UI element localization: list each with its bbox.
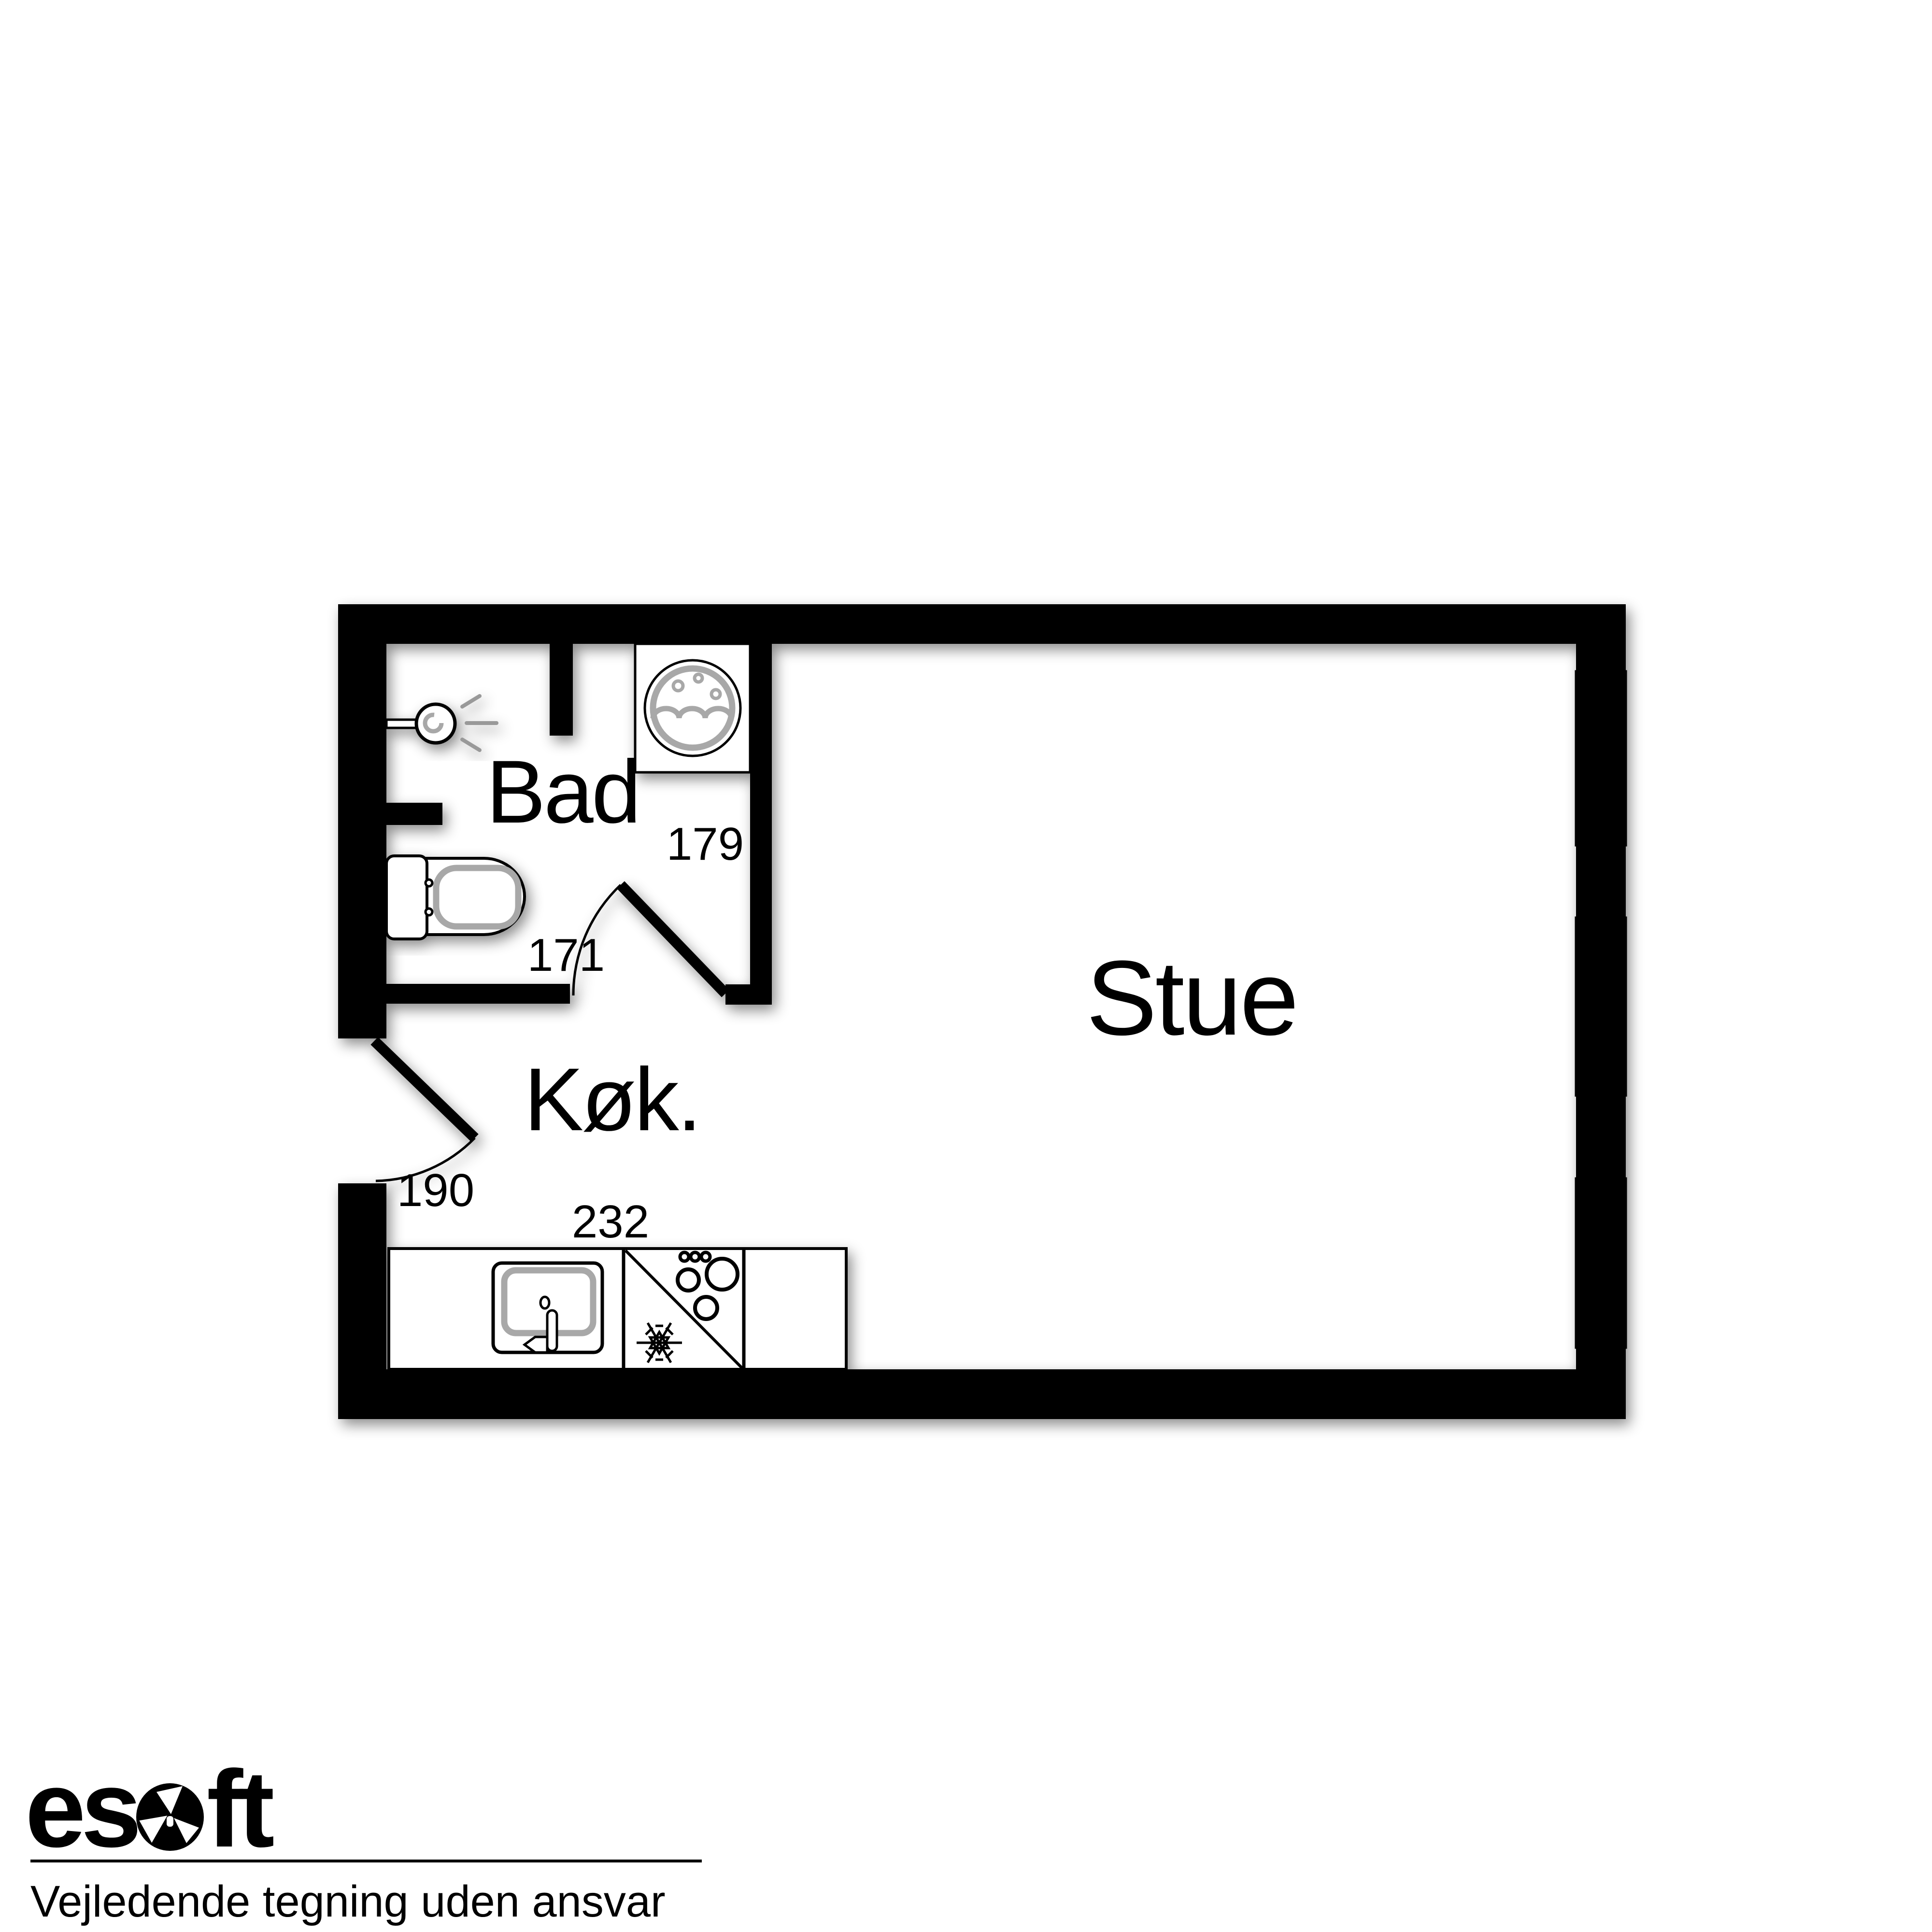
wall-bottom xyxy=(338,1369,1626,1419)
logo-aperture-o-icon xyxy=(136,1783,204,1851)
dim-bad-width: 179 xyxy=(667,818,744,870)
footer: es ft Vejledende tegning uden ansvar xyxy=(25,1747,702,1926)
wall-bath-left-stub xyxy=(386,803,442,825)
toilet-tank xyxy=(386,856,427,939)
footer-divider-line xyxy=(30,1860,702,1862)
wall-bath-bottom xyxy=(338,984,570,1004)
wall-left-upper xyxy=(338,604,386,1038)
toilet-hinge-bolt xyxy=(426,880,432,886)
footer-disclaimer: Vejledende tegning uden ansvar xyxy=(30,1877,666,1926)
toilet-icon xyxy=(386,856,525,939)
door-leaf xyxy=(374,1041,475,1138)
logo-text-left: es xyxy=(25,1747,138,1870)
entry-door xyxy=(374,1041,475,1181)
sink-drain xyxy=(540,1297,549,1308)
wall-bath-top-stub xyxy=(550,644,573,736)
floorplan-canvas: Bad Køk. Stue 179 171 190 232 es ft Vejl… xyxy=(0,0,1932,1932)
hand-basin-icon xyxy=(386,696,497,750)
wall-bath-right xyxy=(750,644,772,1005)
dim-bad-door: 171 xyxy=(527,929,605,981)
kitchen-counter xyxy=(389,1249,846,1369)
kitchen-sink-icon xyxy=(493,1263,602,1352)
logo-text-right: ft xyxy=(207,1747,273,1870)
hob-knob xyxy=(680,1252,689,1261)
toilet-seat xyxy=(436,868,518,926)
room-label-bad: Bad xyxy=(486,742,639,842)
hob-burner xyxy=(695,1297,717,1319)
room-label-koek: Køk. xyxy=(524,1050,700,1150)
door-leaf xyxy=(621,885,725,994)
room-label-stue: Stue xyxy=(1086,938,1297,1057)
sink-faucet xyxy=(547,1310,557,1351)
washing-machine-icon xyxy=(635,644,750,772)
hob-burner xyxy=(678,1269,699,1291)
counter-outline xyxy=(389,1249,846,1369)
toilet-hinge-bolt xyxy=(426,909,432,915)
wall-left-lower xyxy=(338,1183,386,1419)
wall-top xyxy=(338,604,1626,644)
hob-burner xyxy=(707,1259,738,1290)
hob-knob xyxy=(691,1252,699,1261)
dim-entry-door: 190 xyxy=(397,1165,474,1216)
esoft-logo: es ft xyxy=(25,1747,273,1870)
basin-bowl xyxy=(416,704,455,743)
dim-kitchen-counter: 232 xyxy=(572,1196,649,1248)
wall-right xyxy=(1576,604,1626,1419)
hob-knob xyxy=(701,1252,710,1261)
